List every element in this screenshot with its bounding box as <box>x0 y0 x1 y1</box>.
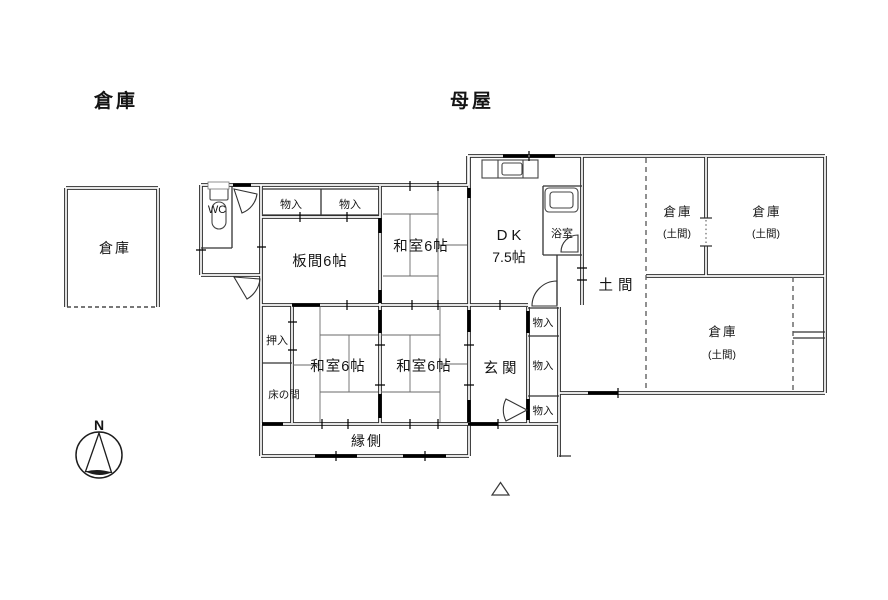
compass-north-label: N <box>94 417 104 433</box>
compass-needle-base <box>86 470 112 475</box>
floor-plan-drawing: N 倉庫 母屋 倉庫 WC 物入 物入 板間6帖 和室6帖 DK 7.5帖 浴室… <box>0 0 888 600</box>
label-storage-ne-large: 倉庫 <box>752 204 781 219</box>
outer-walls <box>66 156 825 457</box>
label-engawa: 縁側 <box>351 433 383 449</box>
label-storage-ne-large-sub: (土間) <box>752 227 780 240</box>
label-itanoma: 板間6帖 <box>292 252 348 270</box>
label-tokonoma: 床の間 <box>268 388 300 401</box>
label-washitsu-north: 和室6帖 <box>393 238 449 255</box>
dk-doma-door <box>532 281 557 306</box>
toilet-tank <box>210 188 228 200</box>
floor-plan-page: N 倉庫 母屋 倉庫 WC 物入 物入 板間6帖 和室6帖 DK 7.5帖 浴室… <box>0 0 888 600</box>
compass: N <box>76 417 122 478</box>
wc-door <box>234 189 257 213</box>
triangle-marker <box>492 483 509 496</box>
label-bath: 浴室 <box>551 226 573 240</box>
label-closet-top-2: 物入 <box>339 197 361 211</box>
genkan-closet-door <box>503 399 527 421</box>
label-oshiire: 押入 <box>266 333 288 347</box>
title-main-house: 母屋 <box>450 90 494 112</box>
label-closet-e-3: 物入 <box>533 404 554 417</box>
label-dk-size: 7.5帖 <box>492 249 525 265</box>
label-washitsu-sw: 和室6帖 <box>310 358 366 375</box>
kitchen-counter <box>482 160 538 178</box>
wc-window <box>208 182 229 189</box>
label-outbuilding: 倉庫 <box>99 240 131 256</box>
kitchen-sink <box>502 163 522 175</box>
label-genkan: 玄関 <box>484 360 521 377</box>
bathtub <box>545 188 578 212</box>
label-storage-east: 倉庫 <box>708 324 737 339</box>
label-closet-top-1: 物入 <box>280 197 302 211</box>
label-closet-e-2: 物入 <box>533 359 554 372</box>
back-door <box>234 277 260 299</box>
label-wc: WC <box>208 204 226 216</box>
label-doma: 土間 <box>599 277 638 294</box>
label-closet-e-1: 物入 <box>533 316 554 329</box>
label-dk-name: DK <box>497 227 526 244</box>
label-storage-ne-small-sub: (土間) <box>663 227 691 240</box>
label-storage-east-sub: (土間) <box>708 348 736 361</box>
label-washitsu-se: 和室6帖 <box>396 358 452 375</box>
title-outbuilding: 倉庫 <box>93 89 138 112</box>
compass-needle <box>86 433 112 473</box>
label-storage-ne-small: 倉庫 <box>663 204 692 219</box>
